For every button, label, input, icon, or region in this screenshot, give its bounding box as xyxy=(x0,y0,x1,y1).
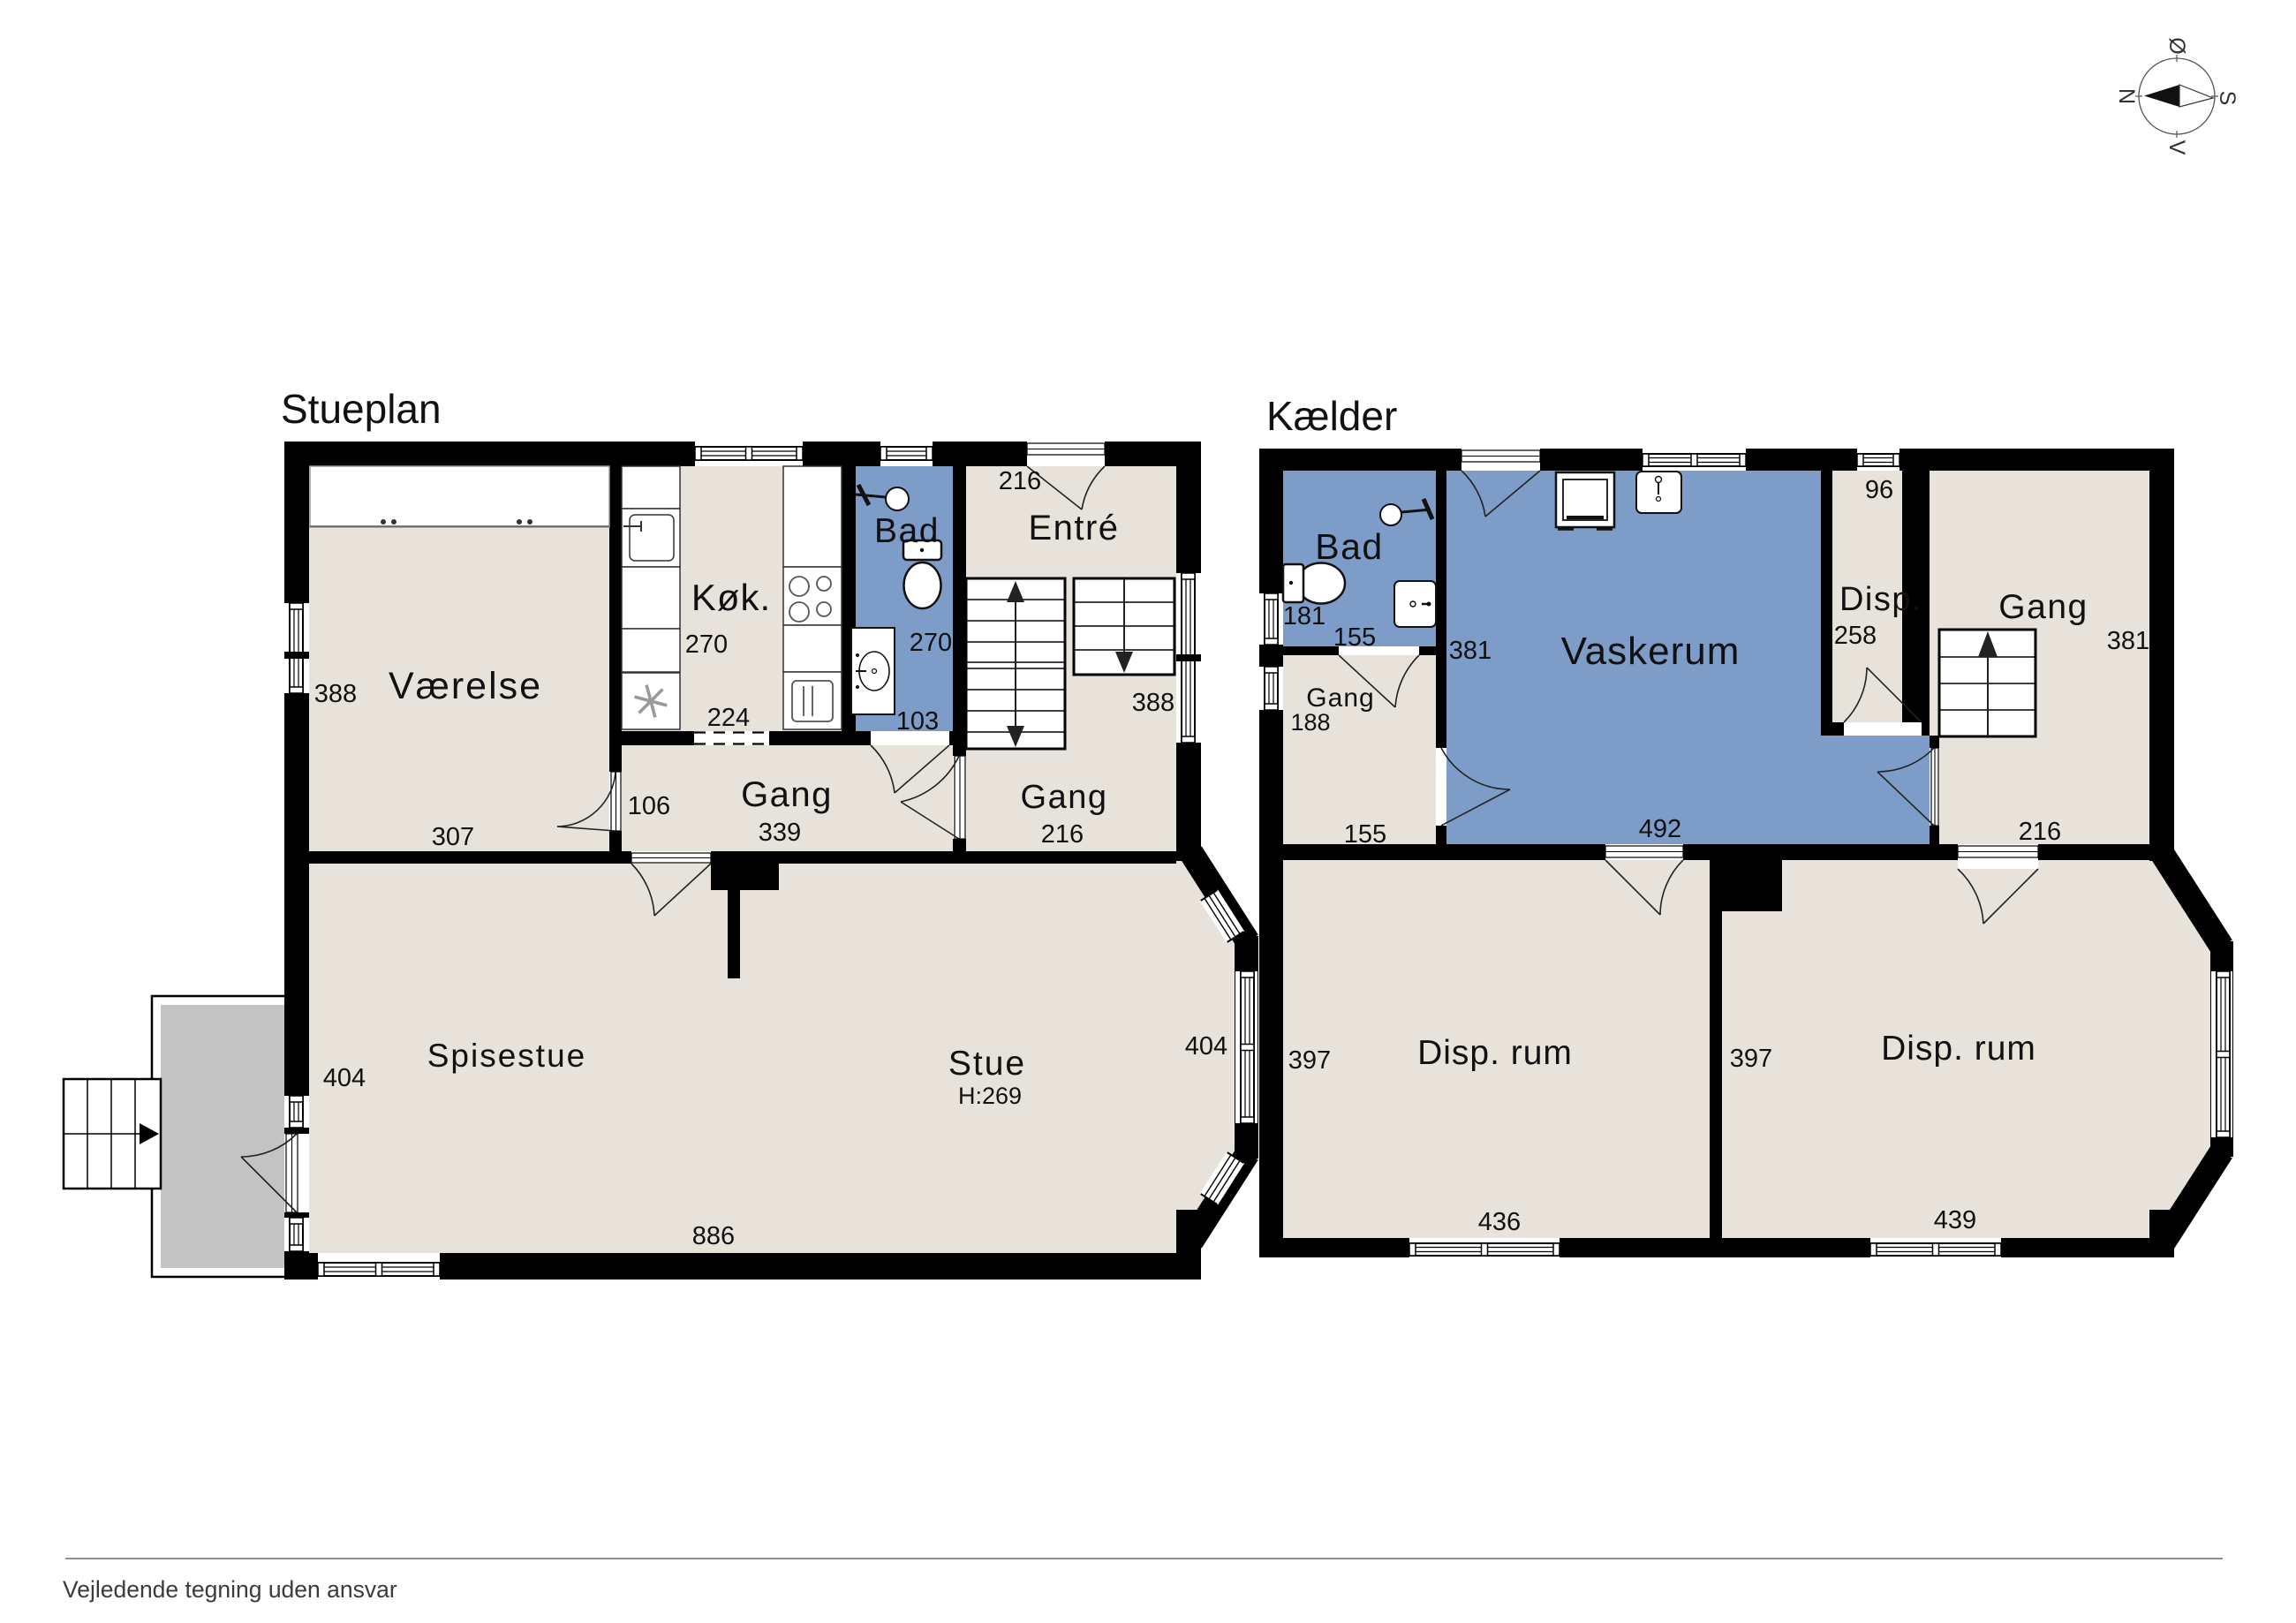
svg-text:439: 439 xyxy=(1934,1206,1976,1234)
svg-text:Spisestue: Spisestue xyxy=(427,1038,587,1074)
svg-text:155: 155 xyxy=(1344,820,1386,849)
svg-text:Køk.: Køk. xyxy=(691,577,771,618)
svg-text:188: 188 xyxy=(1290,709,1330,736)
svg-text:381: 381 xyxy=(2107,627,2149,655)
svg-text:404: 404 xyxy=(323,1064,366,1092)
svg-text:388: 388 xyxy=(1132,689,1174,717)
svg-text:106: 106 xyxy=(628,792,670,820)
svg-text:388: 388 xyxy=(314,680,357,708)
svg-text:436: 436 xyxy=(1478,1208,1521,1236)
svg-text:Entré: Entré xyxy=(1028,509,1119,547)
svg-text:Vaskerum: Vaskerum xyxy=(1561,630,1741,673)
svg-text:Disp. rum: Disp. rum xyxy=(1881,1030,2036,1068)
svg-text:Stueplan: Stueplan xyxy=(281,386,442,432)
svg-text:H:269: H:269 xyxy=(958,1083,1022,1109)
svg-text:270: 270 xyxy=(685,630,728,659)
svg-text:Værelse: Værelse xyxy=(389,665,542,707)
svg-text:Disp.: Disp. xyxy=(1839,581,1922,618)
svg-text:Gang: Gang xyxy=(741,775,833,814)
svg-text:397: 397 xyxy=(1730,1045,1772,1073)
svg-text:Bad: Bad xyxy=(874,512,940,550)
svg-text:Stue: Stue xyxy=(948,1045,1026,1083)
svg-text:Disp. rum: Disp. rum xyxy=(1417,1034,1573,1072)
svg-text:103: 103 xyxy=(896,707,939,736)
svg-text:155: 155 xyxy=(1333,623,1376,652)
svg-text:339: 339 xyxy=(759,819,801,847)
svg-text:V: V xyxy=(2164,140,2189,155)
svg-text:492: 492 xyxy=(1639,815,1681,843)
svg-text:Kælder: Kælder xyxy=(1266,393,1397,439)
svg-text:96: 96 xyxy=(1865,476,1893,504)
svg-text:S: S xyxy=(2215,91,2239,106)
svg-text:270: 270 xyxy=(910,629,952,657)
svg-text:N: N xyxy=(2114,88,2139,104)
svg-text:Gang: Gang xyxy=(1998,588,2088,626)
svg-text:216: 216 xyxy=(999,467,1041,495)
svg-text:216: 216 xyxy=(1041,820,1084,849)
svg-text:181: 181 xyxy=(1283,602,1325,630)
svg-text:397: 397 xyxy=(1288,1046,1331,1075)
svg-text:Ø: Ø xyxy=(2164,37,2189,54)
svg-text:Bad: Bad xyxy=(1315,526,1383,567)
svg-text:224: 224 xyxy=(707,704,750,732)
svg-text:886: 886 xyxy=(692,1222,735,1250)
svg-text:404: 404 xyxy=(1185,1032,1227,1061)
svg-text:Gang: Gang xyxy=(1021,779,1108,816)
svg-text:216: 216 xyxy=(2019,818,2061,846)
svg-text:307: 307 xyxy=(432,823,474,851)
svg-text:Vejledende tegning uden ansvar: Vejledende tegning uden ansvar xyxy=(63,1576,397,1603)
svg-text:381: 381 xyxy=(1449,637,1492,665)
svg-text:258: 258 xyxy=(1834,622,1877,650)
